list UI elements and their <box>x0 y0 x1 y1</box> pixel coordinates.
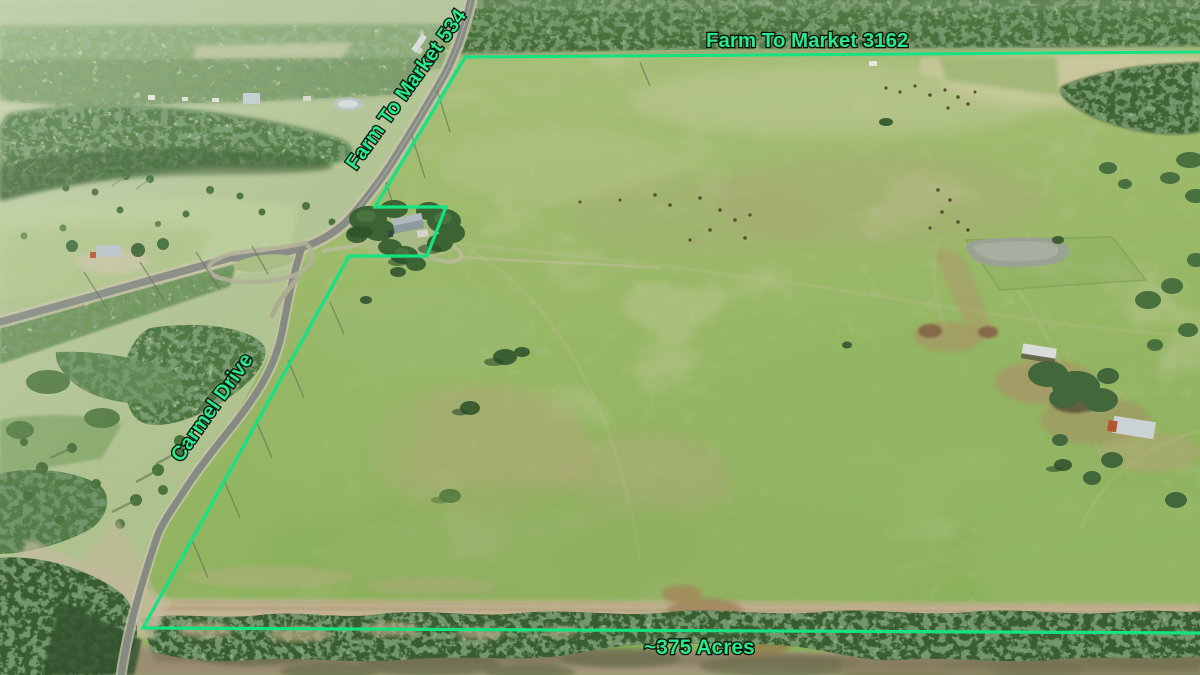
svg-text:Farm To Market 3162: Farm To Market 3162 <box>706 29 908 52</box>
svg-text:~375 Acres: ~375 Acres <box>644 636 755 659</box>
